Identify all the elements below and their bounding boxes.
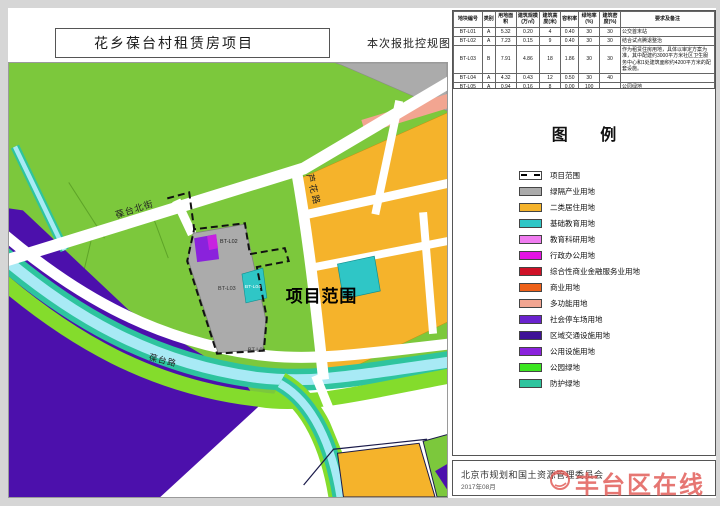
legend-item: 社会停车场用地 xyxy=(519,311,715,327)
col-header: 类别 xyxy=(482,12,495,28)
cell: 7.91 xyxy=(495,46,516,74)
legend-item: 多功能用地 xyxy=(519,295,715,311)
legend-label: 商业用地 xyxy=(550,282,580,293)
color-swatch xyxy=(519,203,542,212)
legend-item: 公园绿地 xyxy=(519,359,715,375)
cell-remark: 结合试点腾退整治 xyxy=(621,36,715,45)
cell: A xyxy=(482,74,495,83)
color-swatch xyxy=(519,251,542,260)
cell: 30 xyxy=(579,74,600,83)
cell: 30 xyxy=(600,27,621,36)
cell: 18 xyxy=(540,46,561,74)
cell: 40 xyxy=(600,74,621,83)
legend-item: 行政办公用地 xyxy=(519,247,715,263)
cell: 0.15 xyxy=(516,36,539,45)
project-title: 花乡葆台村租赁房项目 xyxy=(94,35,254,51)
right-panel: 地块编号 类别 用地面积 建筑规模(万㎡) 建筑高度(米) 容积率 绿地率(%)… xyxy=(452,8,716,498)
plan-date: 2017年08月 xyxy=(461,481,496,491)
legend-label: 区域交通设施用地 xyxy=(550,330,610,341)
cell: 0.40 xyxy=(560,36,578,45)
cell: 30 xyxy=(579,27,600,36)
planning-map: 葆台北街 芦花路 葆台路 BT-L02 BT-L03 BT-L04 BT-L01… xyxy=(8,62,448,498)
cell: 7.23 xyxy=(495,36,516,45)
indicator-table: 地块编号 类别 用地面积 建筑规模(万㎡) 建筑高度(米) 容积率 绿地率(%)… xyxy=(453,11,715,93)
legend-item-project-scope: 项目范围 xyxy=(519,167,715,183)
legend-label: 社会停车场用地 xyxy=(550,314,603,325)
legend-label: 行政办公用地 xyxy=(550,250,595,261)
cell: 9 xyxy=(540,36,561,45)
legend-item: 防护绿地 xyxy=(519,375,715,391)
label-parcel-bt-l03: BT-L03 xyxy=(218,286,236,292)
color-swatch xyxy=(519,331,542,340)
legend-item: 基础教育用地 xyxy=(519,215,715,231)
cell: 4.86 xyxy=(516,46,539,74)
table-row: BT-L03B 7.914.86 181.86 3030 作为租赁住房用地，具体… xyxy=(454,46,715,74)
watermark-logo-icon xyxy=(545,461,575,497)
legend-label: 多功能用地 xyxy=(550,298,588,309)
scanned-plan-page: 花乡葆台村租赁房项目 本次报批控规图 xyxy=(0,0,720,506)
plan-subtitle: 本次报批控规图 xyxy=(363,35,451,51)
cell: BT-L04 xyxy=(454,74,483,83)
cell: BT-L02 xyxy=(454,36,483,45)
cell: BT-L01 xyxy=(454,27,483,36)
color-swatch xyxy=(519,283,542,292)
legend-label: 项目范围 xyxy=(550,170,580,181)
legend-label: 综合性商业金融服务业用地 xyxy=(550,266,640,277)
col-header: 建筑规模(万㎡) xyxy=(516,12,539,28)
legend-item: 综合性商业金融服务业用地 xyxy=(519,263,715,279)
cell: 0.43 xyxy=(516,74,539,83)
col-header: 容积率 xyxy=(560,12,578,28)
label-parcel-bt-l04: BT-L04 xyxy=(245,284,261,290)
cell: BT-L03 xyxy=(454,46,483,74)
project-title-box: 花乡葆台村租赁房项目 xyxy=(55,28,330,58)
watermark-text: 丰台区在线 xyxy=(575,465,705,500)
col-header: 地块编号 xyxy=(454,12,483,28)
legend-item: 区域交通设施用地 xyxy=(519,327,715,343)
page-inner: 花乡葆台村租赁房项目 本次报批控规图 xyxy=(8,8,716,498)
table-row: BT-L01A 5.320.20 40.40 3030 公交首末站 xyxy=(454,27,715,36)
legend-label: 绿隔产业用地 xyxy=(550,186,595,197)
dashed-boundary-swatch xyxy=(519,171,542,180)
legend-item: 二类居住用地 xyxy=(519,199,715,215)
label-parcel-bt-l02: BT-L02 xyxy=(220,239,238,245)
cell: 0.20 xyxy=(516,27,539,36)
label-project-scope: 项目范围 xyxy=(286,286,358,306)
legend-item: 教育科研用地 xyxy=(519,231,715,247)
cell: 4.32 xyxy=(495,74,516,83)
color-swatch xyxy=(519,235,542,244)
color-swatch xyxy=(519,363,542,372)
table-row: BT-L02A 7.230.15 90.40 3030 结合试点腾退整治 xyxy=(454,36,715,45)
cell: 5.32 xyxy=(495,27,516,36)
col-header: 要求及备注 xyxy=(621,12,715,28)
cell-remark: 公交首末站 xyxy=(621,27,715,36)
orange-parcel-bottom-right xyxy=(337,443,435,497)
table-header-row: 地块编号 类别 用地面积 建筑规模(万㎡) 建筑高度(米) 容积率 绿地率(%)… xyxy=(454,12,715,28)
col-header: 绿地率(%) xyxy=(579,12,600,28)
cell: 0.50 xyxy=(560,74,578,83)
col-header: 建筑高度(米) xyxy=(540,12,561,28)
color-swatch xyxy=(519,187,542,196)
table-row: BT-L04A 4.320.43 120.50 3040 xyxy=(454,74,715,83)
cell: 30 xyxy=(579,36,600,45)
color-swatch xyxy=(519,347,542,356)
watermark: 丰台区在线 xyxy=(545,461,720,497)
cell: 1.86 xyxy=(560,46,578,74)
cell: 30 xyxy=(600,36,621,45)
cell: 4 xyxy=(540,27,561,36)
legend-label: 公用设施用地 xyxy=(550,346,595,357)
cell: A xyxy=(482,36,495,45)
cell-remark xyxy=(621,74,715,83)
indicator-table-box: 地块编号 类别 用地面积 建筑规模(万㎡) 建筑高度(米) 容积率 绿地率(%)… xyxy=(452,10,716,94)
footer-box: 北京市规划和国土资源管理委员会 2017年08月 丰台区在线 xyxy=(452,460,716,496)
legend-label: 公园绿地 xyxy=(550,362,580,373)
legend-label: 二类居住用地 xyxy=(550,202,595,213)
color-swatch xyxy=(519,299,542,308)
legend-item: 绿隔产业用地 xyxy=(519,183,715,199)
map-canvas: 葆台北街 芦花路 葆台路 BT-L02 BT-L03 BT-L04 BT-L01… xyxy=(9,63,447,497)
cell: A xyxy=(482,27,495,36)
legend-item: 商业用地 xyxy=(519,279,715,295)
col-header: 建筑密度(%) xyxy=(600,12,621,28)
legend-label: 防护绿地 xyxy=(550,378,580,389)
cell: 30 xyxy=(579,46,600,74)
color-swatch xyxy=(519,315,542,324)
color-swatch xyxy=(519,267,542,276)
legend-title: 图 例 xyxy=(453,121,715,145)
col-header: 用地面积 xyxy=(495,12,516,28)
label-parcel-bt-l01: BT-L01 xyxy=(248,348,266,354)
legend-box: 图 例 项目范围 绿隔产业用地 二类居住用地 基础教育用地 xyxy=(452,88,716,456)
cell: 0.40 xyxy=(560,27,578,36)
color-swatch xyxy=(519,219,542,228)
legend-label: 教育科研用地 xyxy=(550,234,595,245)
cell: 12 xyxy=(540,74,561,83)
cell-remark: 作为租赁住房用地，具体以审定方案为准，其中配建约3000平方米社区卫生服务中心和… xyxy=(621,46,715,74)
legend-list: 项目范围 绿隔产业用地 二类居住用地 基础教育用地 教育科研用地 xyxy=(519,167,715,391)
color-swatch xyxy=(519,379,542,388)
legend-item: 公用设施用地 xyxy=(519,343,715,359)
legend-label: 基础教育用地 xyxy=(550,218,595,229)
cell: 30 xyxy=(600,46,621,74)
cell: B xyxy=(482,46,495,74)
